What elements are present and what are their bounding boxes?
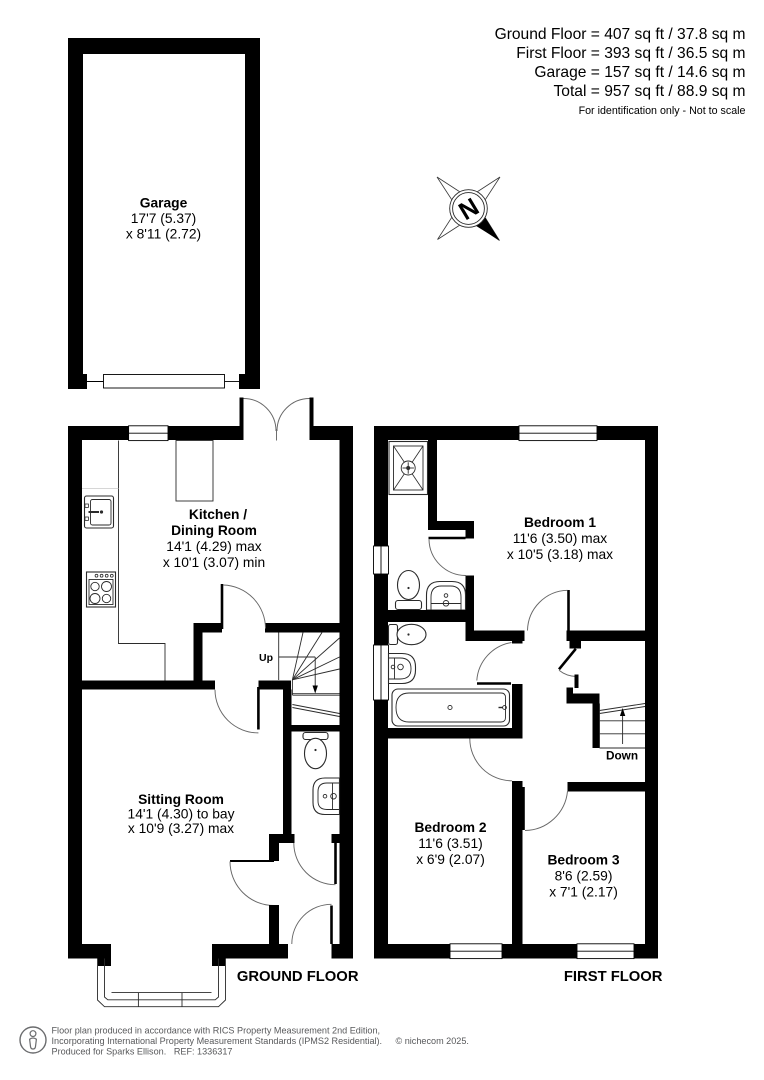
svg-text:Kitchen /: Kitchen / — [189, 507, 247, 522]
svg-text:x 10'1 (3.07) min: x 10'1 (3.07) min — [163, 555, 265, 570]
svg-text:Down: Down — [606, 749, 638, 763]
svg-text:14'1 (4.29) max: 14'1 (4.29) max — [166, 539, 262, 554]
svg-text:x 6'9 (2.07): x 6'9 (2.07) — [416, 852, 485, 867]
svg-text:© nichecom 2025.: © nichecom 2025. — [396, 1036, 469, 1046]
svg-text:14'1 (4.30) to bay: 14'1 (4.30) to bay — [128, 807, 235, 822]
svg-text:Garage = 157 sq ft / 14.6 sq m: Garage = 157 sq ft / 14.6 sq m — [534, 64, 745, 81]
svg-text:FIRST FLOOR: FIRST FLOOR — [564, 969, 663, 985]
svg-text:17'7 (5.37): 17'7 (5.37) — [131, 211, 197, 226]
svg-text:Total = 957 sq ft / 88.9 sq m: Total = 957 sq ft / 88.9 sq m — [554, 83, 746, 100]
svg-text:Produced for Sparks Ellison.: Produced for Sparks Ellison. REF: 133631… — [52, 1047, 233, 1057]
svg-text:Bedroom 3: Bedroom 3 — [547, 853, 619, 868]
svg-text:For identification only - Not: For identification only - Not to scale — [579, 105, 746, 117]
svg-text:Bedroom 1: Bedroom 1 — [524, 515, 596, 530]
svg-text:x 10'5 (3.18) max: x 10'5 (3.18) max — [507, 547, 613, 562]
svg-text:11'6 (3.51): 11'6 (3.51) — [418, 836, 483, 851]
svg-text:Floor plan produced in accorda: Floor plan produced in accordance with R… — [52, 1026, 381, 1036]
svg-text:11'6 (3.50) max: 11'6 (3.50) max — [513, 531, 608, 546]
svg-text:x 10'9 (3.27) max: x 10'9 (3.27) max — [128, 821, 234, 836]
svg-text:GROUND FLOOR: GROUND FLOOR — [237, 969, 359, 985]
svg-text:8'6 (2.59): 8'6 (2.59) — [555, 869, 613, 884]
svg-text:Dining Room: Dining Room — [171, 523, 257, 538]
svg-text:First Floor = 393 sq ft / 36.5: First Floor = 393 sq ft / 36.5 sq m — [516, 45, 745, 62]
svg-text:x 8'11 (2.72): x 8'11 (2.72) — [126, 227, 201, 242]
svg-text:Garage: Garage — [140, 196, 188, 211]
svg-text:x 7'1 (2.17): x 7'1 (2.17) — [549, 885, 618, 900]
svg-text:Ground Floor = 407 sq ft / 37.: Ground Floor = 407 sq ft / 37.8 sq m — [495, 26, 746, 43]
svg-text:Sitting Room: Sitting Room — [138, 792, 224, 807]
svg-text:Incorporating International Pr: Incorporating International Property Mea… — [52, 1036, 383, 1046]
svg-text:Up: Up — [259, 652, 273, 664]
svg-text:Bedroom 2: Bedroom 2 — [414, 820, 486, 835]
